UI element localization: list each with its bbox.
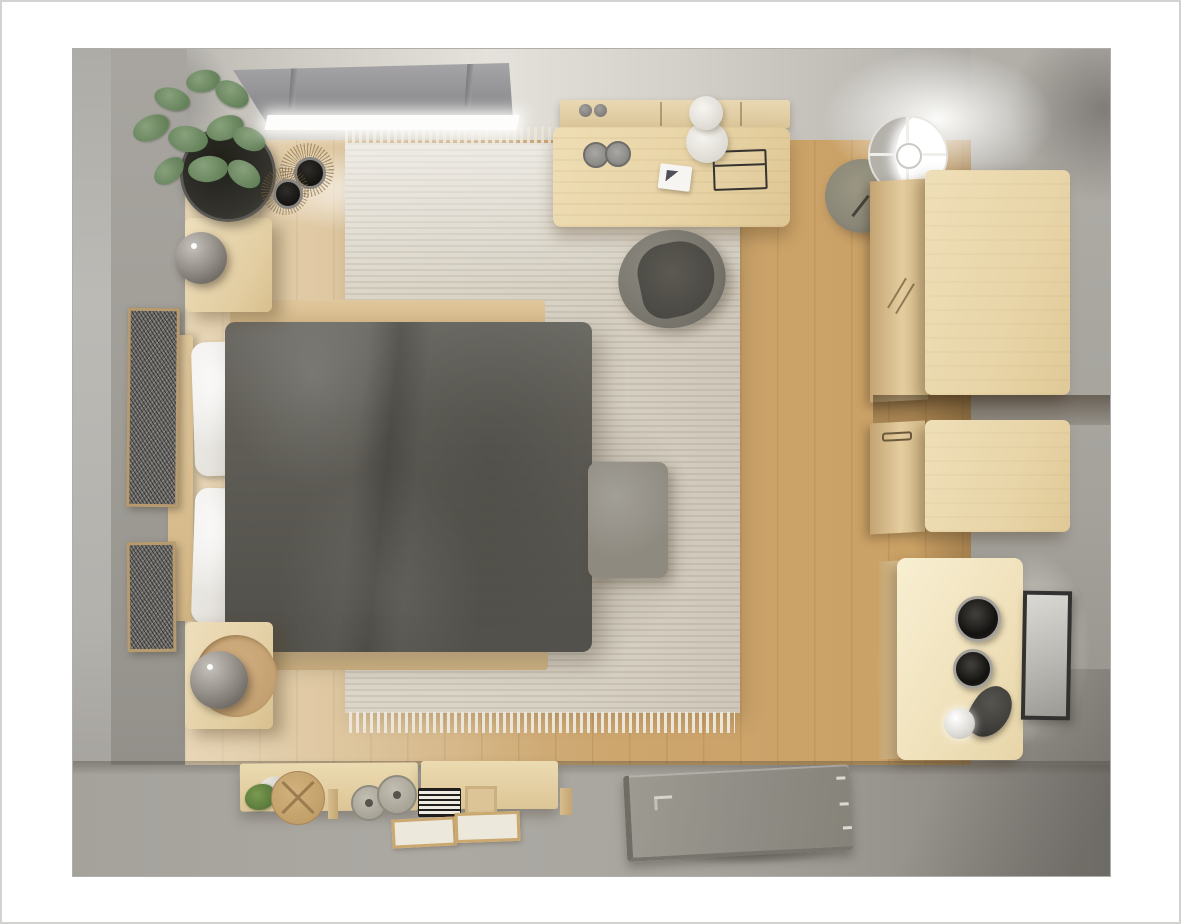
- foot-bench-ottoman: [588, 462, 668, 578]
- wardrobe-upper-front: [870, 178, 928, 402]
- room-render: [73, 49, 1110, 876]
- plant-leaf: [222, 154, 265, 194]
- desk-notepad: [658, 163, 693, 192]
- vanity-jar-small: [953, 649, 993, 689]
- bed-duvet: [225, 322, 592, 652]
- vanity-jar-large: [955, 596, 1001, 642]
- window-light-strip: [264, 115, 519, 130]
- door-hinge: [840, 802, 849, 805]
- wall-shelf: [560, 100, 790, 128]
- blind-rod: [288, 65, 297, 109]
- decor-bowl-2: [273, 179, 303, 209]
- plant-leaf: [166, 123, 209, 154]
- wall-art-frame-1: [126, 308, 180, 507]
- sphere-lamp-upper: [175, 232, 227, 284]
- shelf-knob: [594, 104, 607, 117]
- wardrobe-handle: [882, 431, 912, 442]
- entry-door-flat: [623, 764, 853, 862]
- shelf-divider: [740, 102, 742, 126]
- sphere-lamp-lower: [190, 651, 248, 709]
- screenshot-canvas: [0, 0, 1181, 924]
- wire-basket-bar: [715, 163, 765, 166]
- notepad-pattern: [665, 170, 678, 183]
- round-box-x: [271, 771, 325, 825]
- wood-board: [465, 786, 497, 815]
- glass-jar-2: [377, 775, 417, 815]
- wardrobe-lower-top: [925, 420, 1070, 532]
- wood-peg: [560, 788, 572, 815]
- vanity-lamp-globe: [944, 708, 975, 739]
- wardrobe-handle: [887, 278, 907, 309]
- shelf-divider: [660, 102, 662, 126]
- wardrobe-lower-front: [870, 421, 925, 535]
- wall-art-frame-right: [1021, 591, 1072, 721]
- jar-lid-knob: [365, 799, 373, 807]
- desk-cup-2: [605, 141, 631, 167]
- wood-bracket: [328, 789, 338, 819]
- plant-leaf: [152, 84, 192, 115]
- wall-art-frame-2: [127, 542, 177, 652]
- shelf-knob: [579, 104, 592, 117]
- blind-rod: [464, 63, 473, 107]
- door-handle: [654, 799, 658, 810]
- left-outer-wall: [73, 49, 111, 876]
- rug-fringe-bottom: [349, 712, 735, 733]
- plant-leaf: [187, 154, 229, 183]
- wood-tray-2: [454, 811, 520, 843]
- jar-lid-knob: [393, 791, 401, 799]
- vanity-front: [879, 560, 899, 759]
- desk-lamp-shade: [689, 96, 723, 130]
- plant-leaf: [149, 152, 189, 191]
- lamp-bulb: [896, 143, 922, 169]
- wardrobe-upper-top: [925, 170, 1070, 395]
- plant-leaf: [129, 109, 174, 147]
- door-hinge: [843, 826, 852, 829]
- door-hinge: [836, 776, 845, 779]
- wood-tray-1: [391, 816, 456, 848]
